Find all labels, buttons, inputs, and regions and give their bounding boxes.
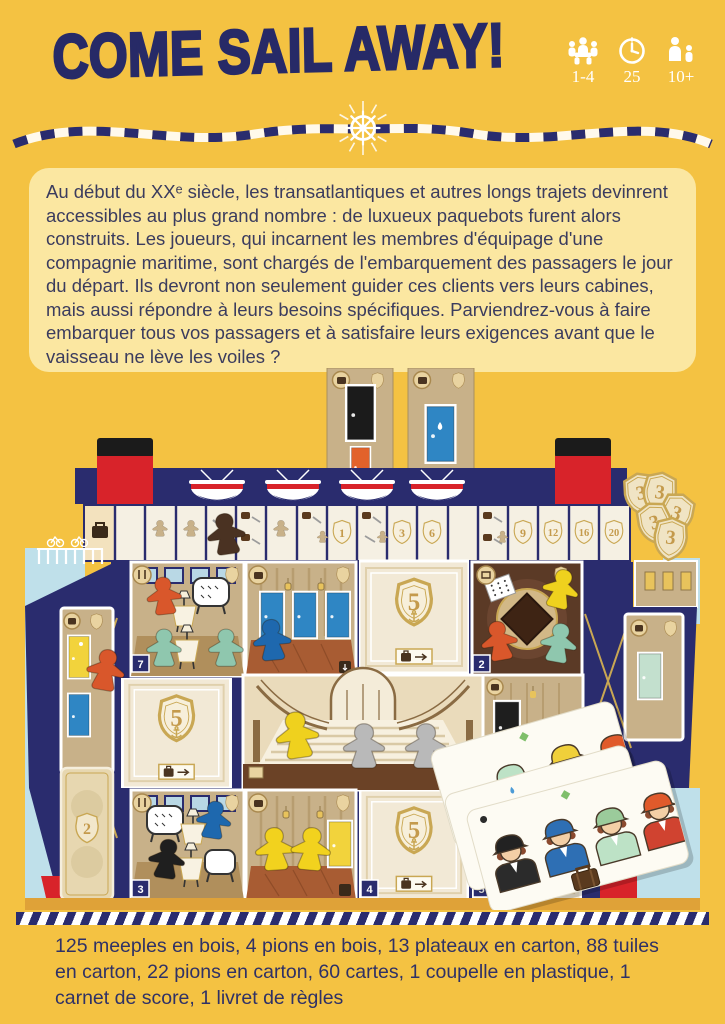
svg-text:3: 3	[399, 526, 405, 540]
svg-text:9: 9	[520, 526, 526, 540]
ship-board-illustration: 5	[25, 368, 700, 910]
blue-door	[424, 404, 456, 464]
yellow-door	[67, 635, 91, 680]
players-icon	[563, 34, 603, 66]
svg-text:3: 3	[137, 884, 143, 896]
tile-corridor-yellow	[246, 790, 356, 900]
tile-facedown-top	[359, 561, 469, 673]
mint-door	[637, 652, 663, 701]
tile-corridor-blue	[246, 562, 356, 676]
svg-text:4: 4	[366, 884, 373, 896]
intro-text: Au début du XXᵉ siècle, les transatlanti…	[46, 181, 673, 367]
stat-duration: 25	[612, 34, 652, 87]
stat-age: 10+	[661, 34, 701, 87]
yellow-door	[327, 820, 353, 869]
age-icon	[661, 34, 701, 66]
duration-minutes: 25	[624, 67, 641, 87]
components-list: 125 meeples en bois, 4 pions en bois, 13…	[55, 933, 680, 1011]
age-minimum: 10+	[668, 67, 695, 87]
action-track: 1 3 6 9 12 16 20	[83, 504, 631, 562]
rope-stripe-divider	[16, 912, 709, 925]
plaque-icon	[249, 767, 263, 778]
svg-text:20: 20	[609, 528, 620, 539]
elevator-icon	[339, 884, 351, 896]
svg-text:1: 1	[339, 526, 345, 540]
black-door	[345, 384, 376, 442]
timer-icon	[612, 34, 652, 66]
svg-text:16: 16	[579, 528, 590, 539]
svg-text:7: 7	[137, 659, 143, 671]
hull-card-2: 2	[61, 768, 113, 900]
svg-text:2: 2	[478, 659, 484, 671]
stat-players: 1-4	[563, 34, 603, 87]
board-base-strip	[25, 898, 700, 910]
intro-box: Au début du XXᵉ siècle, les transatlanti…	[29, 168, 696, 372]
blue-door	[67, 693, 91, 738]
ship-wheel-icon	[347, 112, 380, 145]
cabin-tile-blue	[408, 368, 474, 470]
funnel-right	[555, 438, 611, 504]
bicycle-icons	[48, 537, 88, 547]
page-title: COME SAIL AWAY!	[52, 10, 505, 92]
hull-card-number: 2	[83, 821, 91, 838]
svg-text:6: 6	[429, 526, 435, 540]
blue-door	[325, 591, 351, 640]
svg-text:12: 12	[548, 528, 559, 539]
players-count: 1-4	[572, 67, 595, 87]
rope-divider	[0, 98, 725, 166]
blue-door	[292, 591, 318, 640]
tile-stern-cabin	[625, 614, 683, 740]
reward-tokens: 3 3 3 3 3	[621, 470, 698, 561]
funnel-left	[97, 438, 153, 504]
game-stats: 1-4 25 10+	[563, 34, 701, 87]
tile-facedown-mid	[122, 678, 230, 788]
